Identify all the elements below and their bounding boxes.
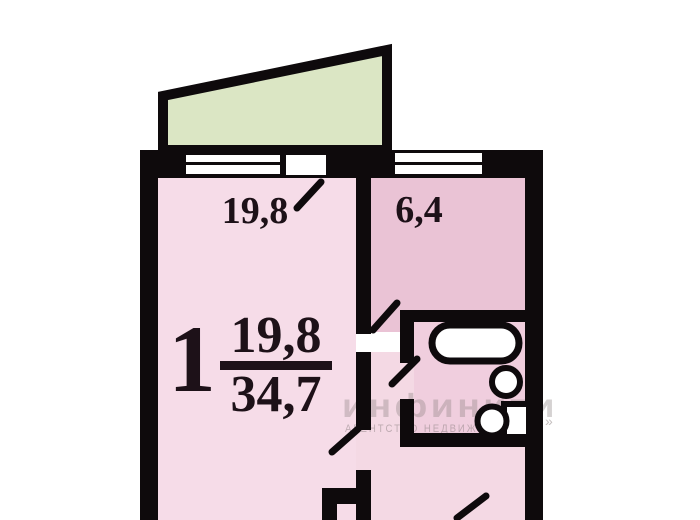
window-kitchen-pane-2 <box>395 165 482 174</box>
balcony <box>163 50 387 150</box>
living-room-door-floor <box>356 430 371 470</box>
wall-interior-upper <box>356 178 371 334</box>
wall-bathroom-top <box>400 310 543 322</box>
floor-plan-page: инфинити агентство недвижимости » <box>0 0 700 520</box>
total-area-label: 34,7 <box>231 366 322 423</box>
kitchen-door-opening <box>371 332 400 352</box>
living-room-area-label: 19,8 <box>222 190 289 232</box>
wall-left-outer <box>140 150 158 520</box>
window-living-pane-2 <box>186 165 280 174</box>
living-area-label: 19,8 <box>231 307 322 364</box>
kitchen-area-label: 6,4 <box>395 189 443 231</box>
window-kitchen-pane-1 <box>395 153 482 162</box>
wall-closet-horizontal <box>322 488 371 504</box>
watermark-arrow: » <box>545 413 553 429</box>
wall-closet-vertical <box>322 504 337 520</box>
floor-plan-svg: инфинити агентство недвижимости » <box>0 0 700 520</box>
wall-interior-middle <box>356 352 371 430</box>
toilet-bowl <box>478 407 507 436</box>
wall-right-outer <box>525 150 543 520</box>
hallway-floor <box>371 447 525 520</box>
bathtub <box>432 325 519 361</box>
kitchen-floor <box>371 178 525 310</box>
wall-bathroom-left-upper <box>400 310 414 363</box>
balcony-door-opening <box>286 152 326 175</box>
sink <box>492 368 520 396</box>
room-count-label: 1 <box>168 306 216 412</box>
